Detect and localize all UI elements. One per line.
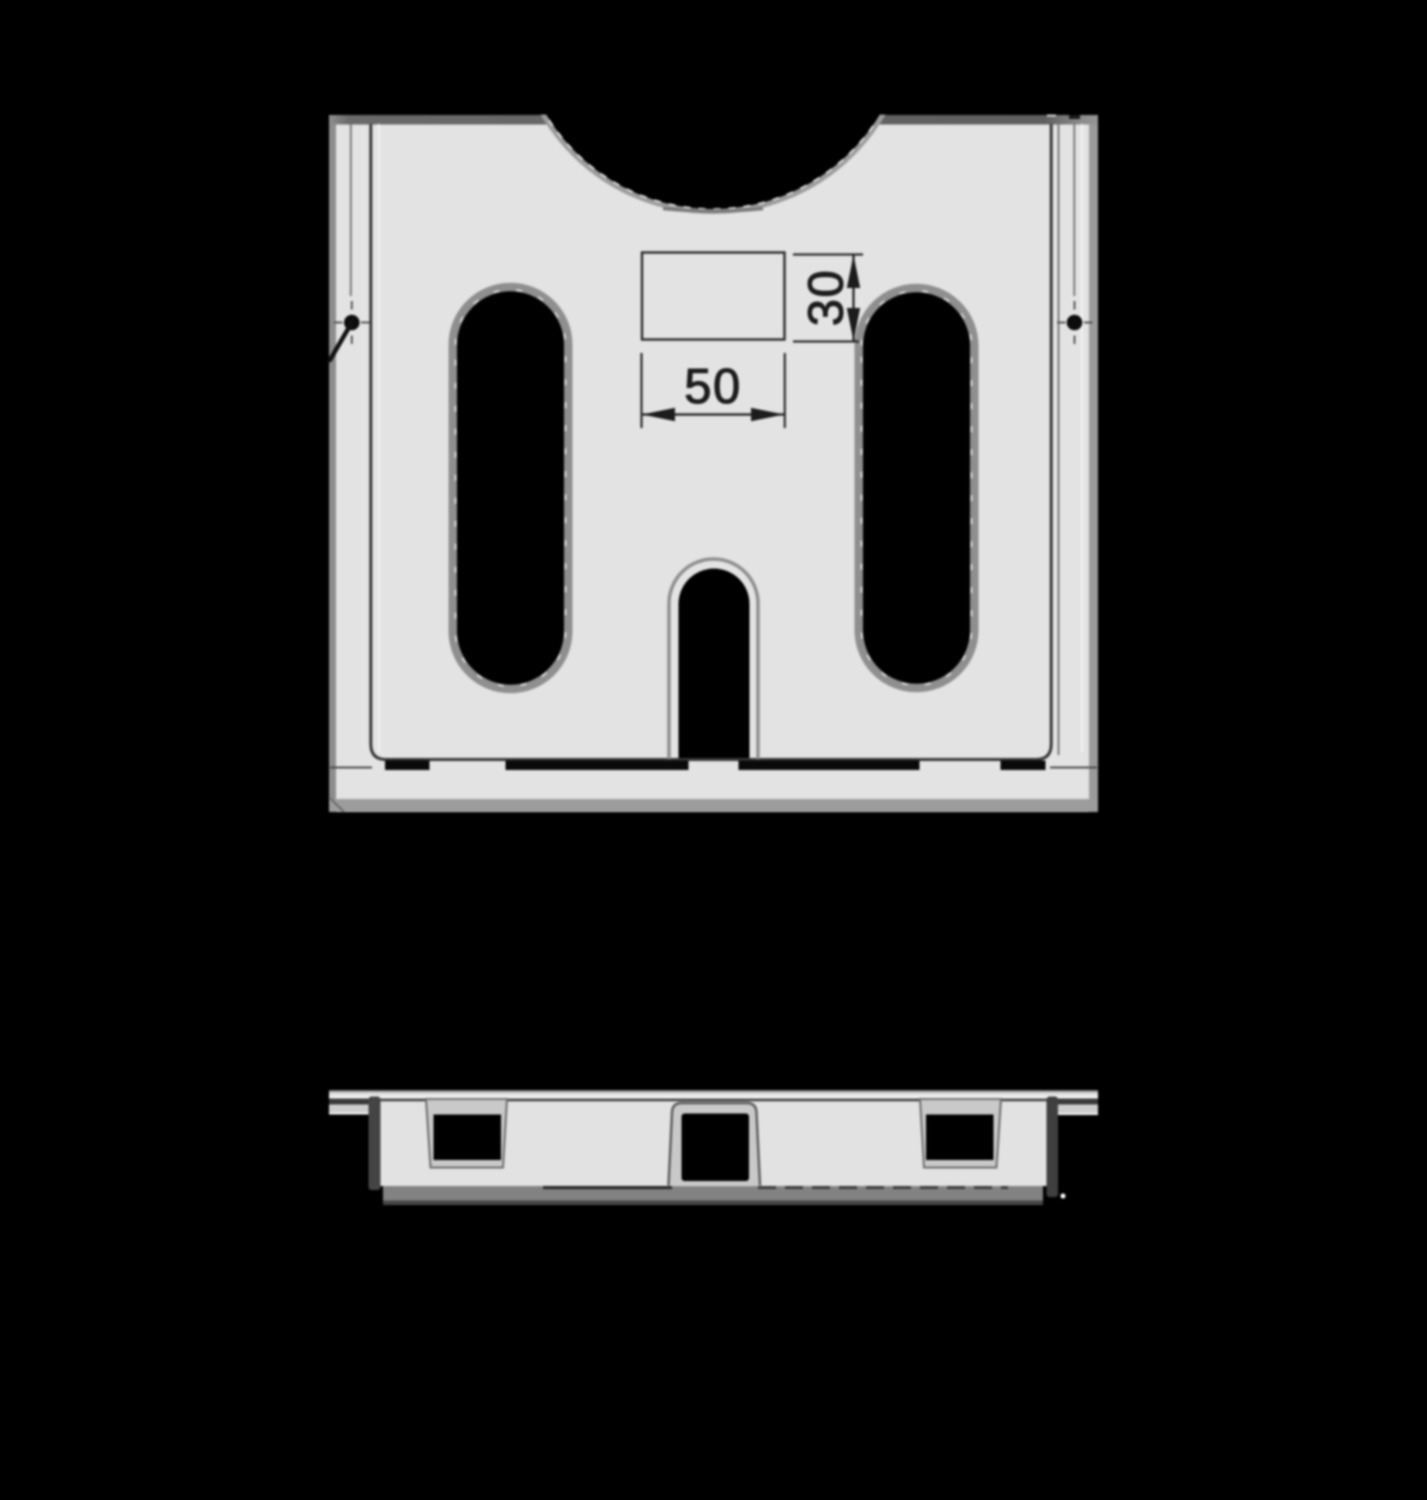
svg-text:50: 50 <box>684 360 742 414</box>
svg-text:30: 30 <box>800 269 854 327</box>
